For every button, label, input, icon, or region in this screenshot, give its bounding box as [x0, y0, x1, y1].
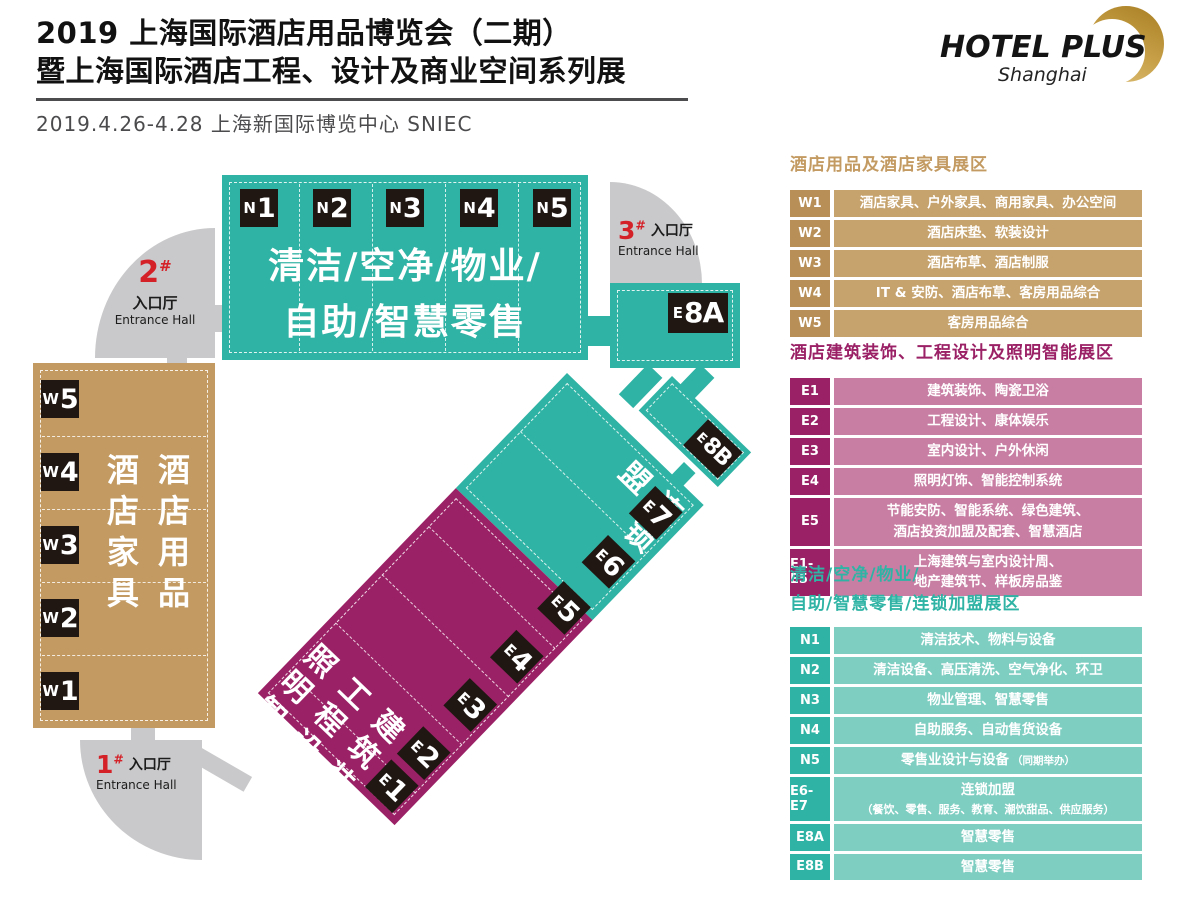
legend-row-w2: W2 酒店床垫、软装设计	[790, 220, 1142, 247]
entrance-1-number: 1#	[96, 750, 124, 779]
legend-row-w5: W5 客房用品综合	[790, 310, 1142, 337]
entrance-2-label-cn: 入口厅	[95, 292, 215, 313]
entrance-3-label-en: Entrance Hall	[618, 244, 702, 258]
legend-row-e6-e7: E6-E7 连锁加盟 （餐饮、零售、服务、教育、潮饮甜品、供应服务）	[790, 777, 1142, 821]
hall-divider	[42, 655, 206, 656]
legend-row-n5: N5 零售业设计与设备（同期举办）	[790, 747, 1142, 774]
title-line-2: 暨上海国际酒店工程、设计及商业空间系列展	[36, 52, 626, 90]
hall-tile-n5: N5	[533, 189, 571, 227]
entrance-hall-3: 3#入口厅 Entrance Hall	[610, 182, 702, 284]
logo-name: HOTEL PLUS	[940, 30, 1140, 65]
w-block-caption: 酒店用品 酒店家具	[88, 453, 200, 653]
n-block-caption-line2: 自助/智慧零售	[222, 293, 588, 345]
hall-tile-w1: W1	[41, 672, 79, 710]
entrance-3-number: 3#	[618, 216, 646, 245]
title-line-1: 2019 上海国际酒店用品博览会（二期）	[36, 14, 626, 52]
entrance-hall-2: 2# 入口厅 Entrance Hall	[95, 228, 215, 358]
hall-tile-w2: W2	[41, 599, 79, 637]
legend-section-cleaning: 清洁/空净/物业/ 自助/智慧零售/连锁加盟展区 N1 清洁技术、物料与设备 N…	[790, 560, 1142, 883]
legend-row-e4: E4 照明灯饰、智能控制系统	[790, 468, 1142, 495]
legend-cleaning-title-line2: 自助/智慧零售/连锁加盟展区	[790, 589, 1142, 614]
hall-tile-w3: W3	[41, 526, 79, 564]
legend-row-n2: N2 清洁设备、高压清洗、空气净化、环卫	[790, 657, 1142, 684]
hall-tile-w4: W4	[41, 453, 79, 491]
hall-tile-e8a: E8A	[668, 293, 728, 333]
hall-e8a: E8A	[610, 283, 740, 368]
legend-row-n3: N3 物业管理、智慧零售	[790, 687, 1142, 714]
n-block-caption-line1: 清洁/空净/物业/	[222, 237, 588, 289]
entrance-hall-1: 1#入口厅 Entrance Hall	[80, 740, 202, 860]
title-divider	[36, 98, 688, 101]
hall-tile-n3: N3	[386, 189, 424, 227]
hall-tile-n2: N2	[313, 189, 351, 227]
hall-tile-n1: N1	[240, 189, 278, 227]
legend-furniture-title: 酒店用品及酒店家具展区	[790, 150, 1142, 175]
n-halls-block: N1 N2 N3 N4 N5 清洁/空净/物业/ 自助/智慧零售	[222, 175, 588, 360]
w-caption-col-right: 酒店用品	[149, 453, 195, 653]
hall-tile-w5: W5	[41, 380, 79, 418]
w-halls-block: W5 W4 W3 W2 W1 酒店用品 酒店家具	[33, 363, 215, 728]
date-venue: 2019.4.26-4.28 上海新国际博览中心 SNIEC	[36, 108, 472, 137]
legend-row-n4: N4 自助服务、自动售货设备	[790, 717, 1142, 744]
legend-section-furniture: 酒店用品及酒店家具展区 W1 酒店家具、户外家具、商用家具、办公空间 W2 酒店…	[790, 150, 1142, 340]
hotel-plus-logo: HOTEL PLUS Shanghai	[940, 6, 1170, 98]
east-strip: 连锁加盟 建筑装饰 工程设计 照明智能 E7 E6 E5 E4 E3 E2 E1	[258, 373, 704, 825]
legend-row-e2: E2 工程设计、康体娱乐	[790, 408, 1142, 435]
legend-cleaning-title-line1: 清洁/空净/物业/	[790, 560, 1142, 585]
legend-row-e5: E5 节能安防、智能系统、绿色建筑、 酒店投资加盟及配套、智慧酒店	[790, 498, 1142, 546]
hall-tile-n4: N4	[460, 189, 498, 227]
entrance-1-label-cn: 入口厅	[129, 757, 171, 773]
legend-row-w4: W4 IT & 安防、酒店布草、客房用品综合	[790, 280, 1142, 307]
logo-city: Shanghai	[998, 64, 1087, 86]
legend-row-n1: N1 清洁技术、物料与设备	[790, 627, 1142, 654]
legend-row-e8a: E8A 智慧零售	[790, 824, 1142, 851]
page-title: 2019 上海国际酒店用品博览会（二期） 暨上海国际酒店工程、设计及商业空间系列…	[36, 14, 626, 90]
legend-row-w1: W1 酒店家具、户外家具、商用家具、办公空间	[790, 190, 1142, 217]
entrance-2-label-en: Entrance Hall	[95, 313, 215, 327]
legend-row-e8b: E8B 智慧零售	[790, 854, 1142, 881]
legend-engineering-title: 酒店建筑装饰、工程设计及照明智能展区	[790, 338, 1142, 363]
link-nhall-e8a	[588, 316, 612, 346]
legend-row-e3: E3 室内设计、户外休闲	[790, 438, 1142, 465]
legend-row-e1: E1 建筑装饰、陶瓷卫浴	[790, 378, 1142, 405]
entrance-2-number: 2#	[138, 255, 171, 290]
hall-divider	[42, 436, 206, 437]
legend-row-w3: W3 酒店布草、酒店制服	[790, 250, 1142, 277]
w-caption-col-left: 酒店家具	[98, 453, 144, 653]
entrance-3-label-cn: 入口厅	[651, 223, 693, 239]
